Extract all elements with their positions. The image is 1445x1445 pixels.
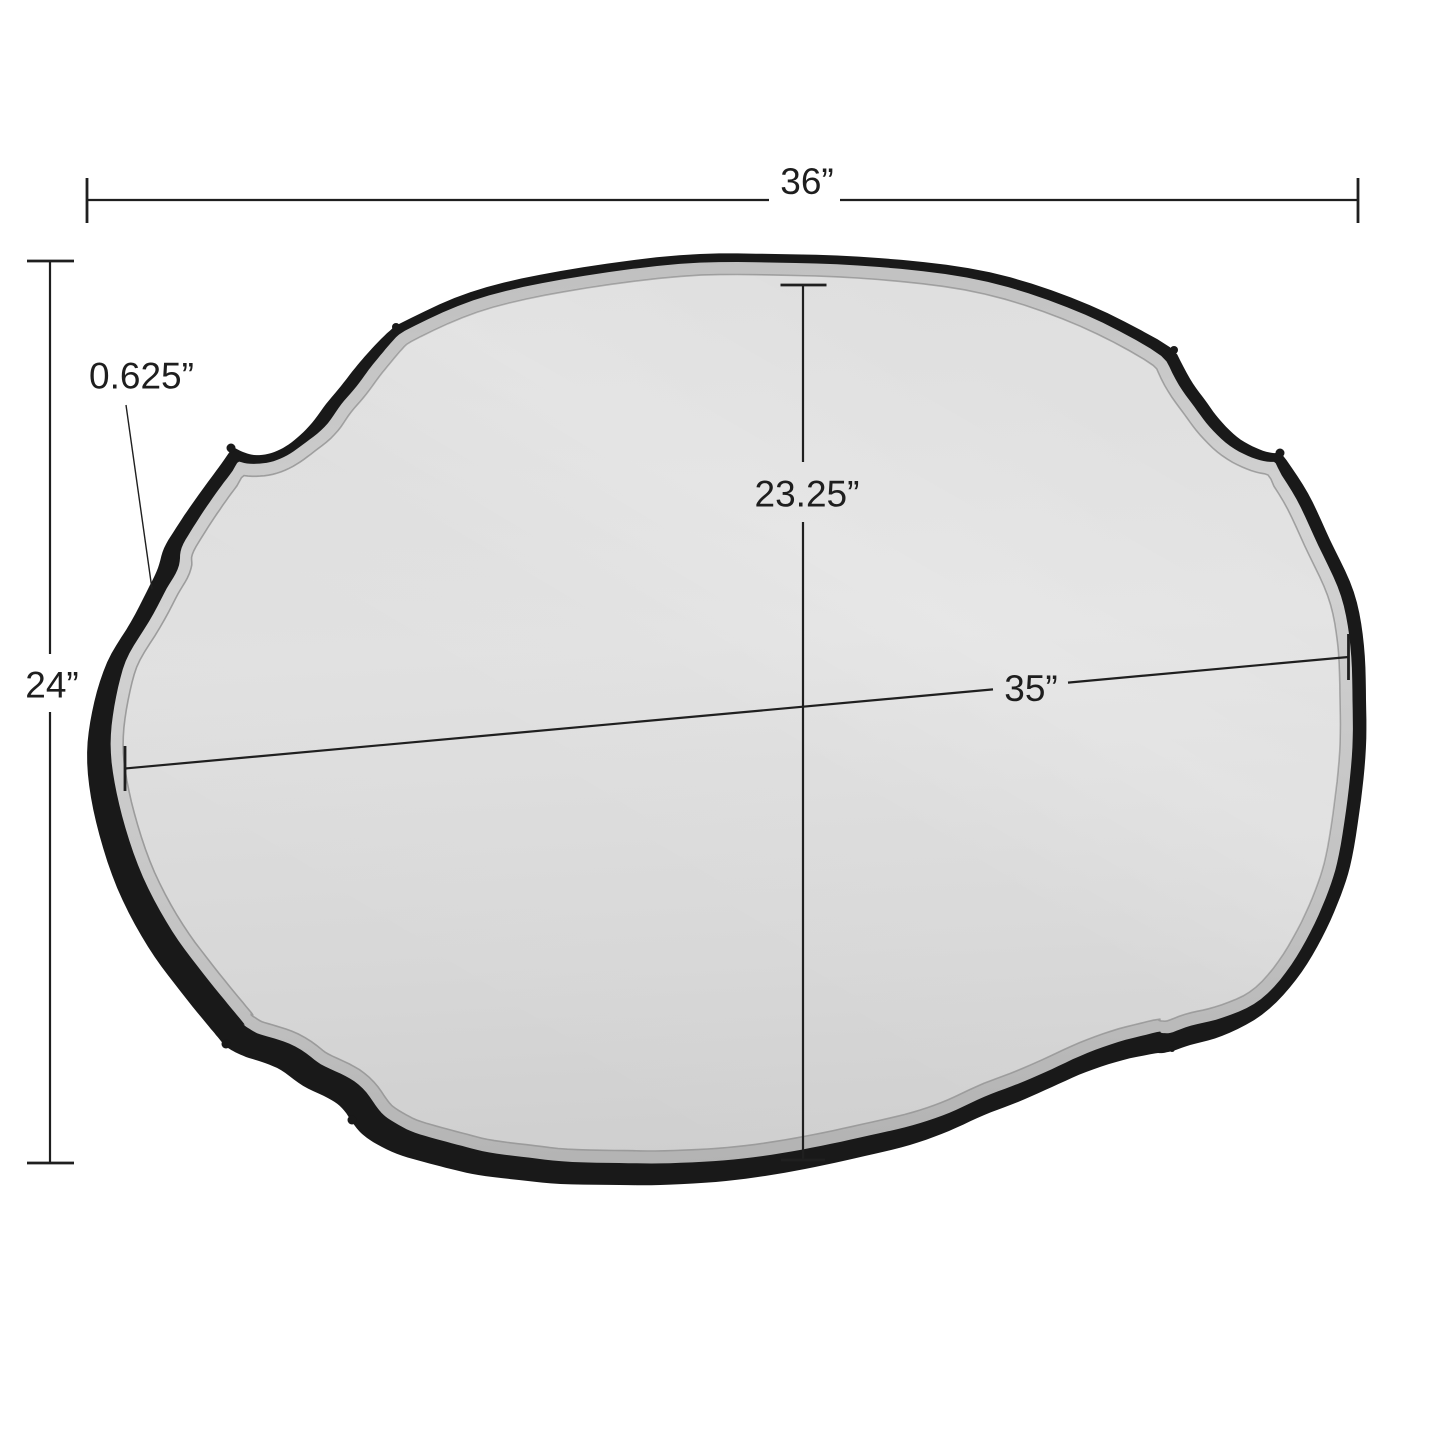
svg-text:23.25”: 23.25” — [755, 474, 860, 515]
svg-text:36”: 36” — [780, 161, 833, 202]
svg-text:0.625”: 0.625” — [89, 356, 194, 397]
svg-text:35”: 35” — [1004, 668, 1057, 709]
svg-text:24”: 24” — [25, 665, 78, 706]
